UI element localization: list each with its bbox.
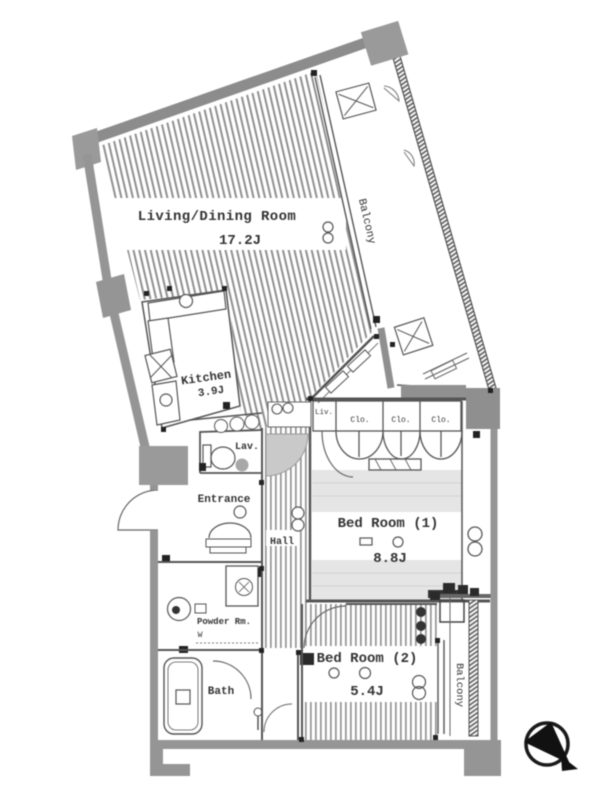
svg-text:Hall: Hall [270, 536, 294, 548]
svg-text:5.4J: 5.4J [350, 684, 384, 700]
svg-text:Entrance: Entrance [198, 494, 251, 506]
svg-text:17.2J: 17.2J [219, 233, 261, 249]
svg-text:Clo.: Clo. [391, 416, 410, 425]
svg-text:Clo.: Clo. [431, 416, 450, 425]
svg-text:Living/Dining Room: Living/Dining Room [138, 209, 296, 225]
svg-text:Bed Room (2): Bed Room (2) [317, 651, 418, 667]
svg-text:Clo.: Clo. [350, 416, 369, 425]
svg-text:Bath: Bath [208, 686, 234, 698]
svg-text:W: W [198, 631, 203, 640]
svg-text:Liv.: Liv. [315, 409, 333, 417]
svg-text:Balcony: Balcony [453, 663, 465, 707]
svg-text:Lav.: Lav. [235, 442, 259, 453]
svg-text:Powder Rm.: Powder Rm. [197, 617, 251, 627]
svg-text:8.8J: 8.8J [373, 551, 407, 567]
svg-text:Bed Room (1): Bed Room (1) [338, 516, 439, 532]
